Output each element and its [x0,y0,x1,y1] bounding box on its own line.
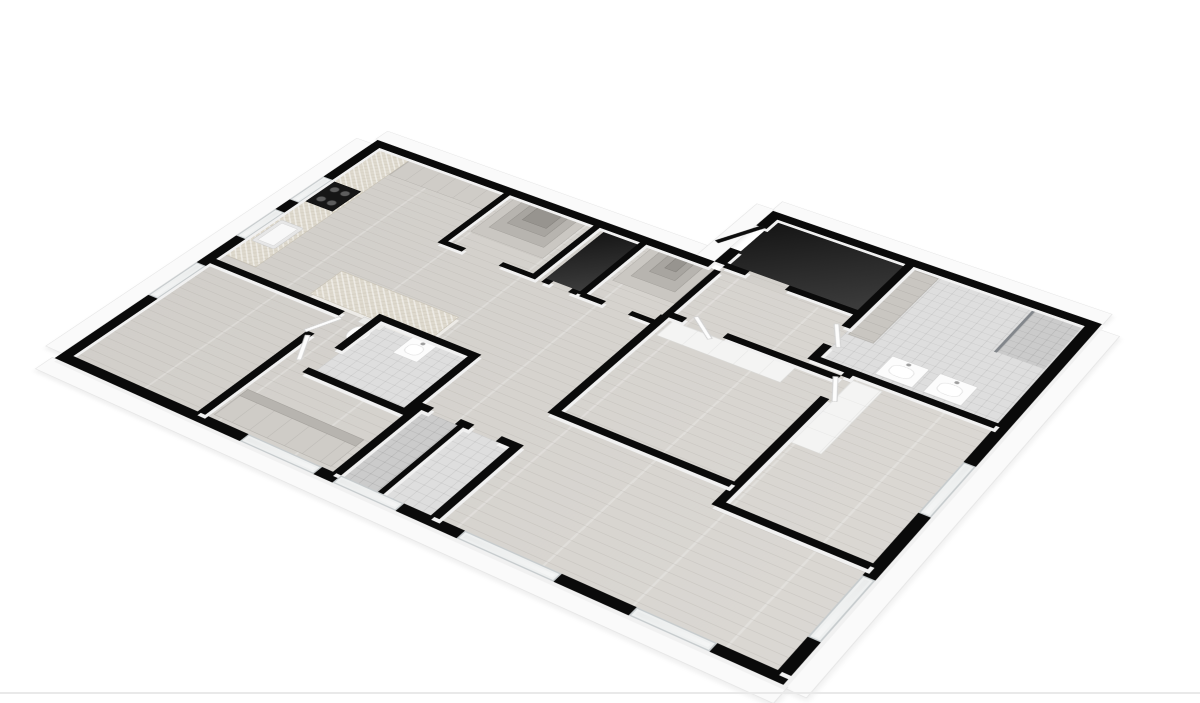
footer-divider [0,692,1200,694]
floorplan-render-page [0,0,1200,703]
isometric-floorplan [26,82,1149,703]
bedroom1-door [832,376,839,402]
